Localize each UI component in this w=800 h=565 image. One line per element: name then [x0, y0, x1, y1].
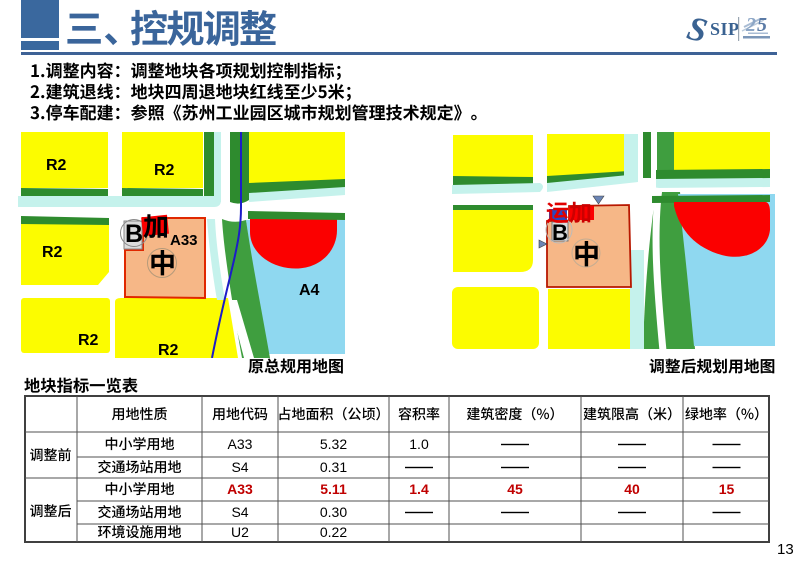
svg-text:1.4: 1.4 — [409, 481, 429, 497]
svg-text:0.31: 0.31 — [320, 459, 347, 475]
svg-text:40: 40 — [624, 481, 640, 497]
svg-text:0.22: 0.22 — [320, 524, 347, 540]
svg-text:A33: A33 — [228, 436, 253, 452]
svg-text:S4: S4 — [231, 459, 248, 475]
svg-text:A33: A33 — [227, 481, 253, 497]
svg-text:45: 45 — [507, 481, 523, 497]
svg-text:15: 15 — [719, 481, 735, 497]
svg-text:U2: U2 — [231, 524, 249, 540]
svg-text:1.0: 1.0 — [409, 436, 429, 452]
svg-text:5.11: 5.11 — [320, 481, 347, 497]
svg-text:0.30: 0.30 — [320, 504, 347, 520]
svg-text:S4: S4 — [231, 504, 248, 520]
svg-text:5.32: 5.32 — [320, 436, 347, 452]
